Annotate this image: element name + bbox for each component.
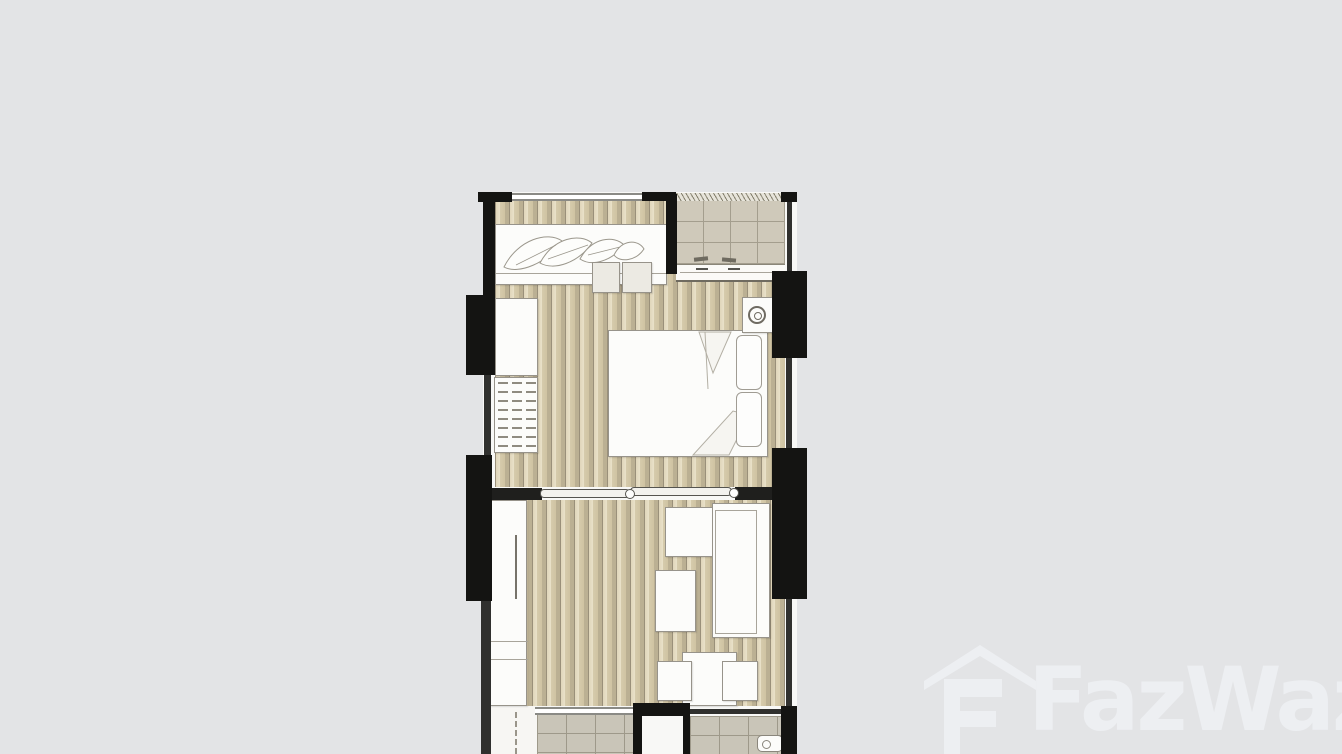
shelf-items — [526, 382, 536, 448]
column-left-upper — [466, 295, 495, 375]
column-right-upper — [772, 271, 807, 358]
wall-bath-divider-right — [683, 716, 690, 754]
pillow-1 — [736, 335, 762, 390]
wall-right-bottom-corner — [781, 706, 797, 754]
sliding-door-panel-1 — [540, 489, 630, 498]
wall-left-lower — [481, 600, 491, 754]
closet-cabinet — [495, 298, 538, 376]
balcony-sliding-door-threshold — [676, 264, 785, 282]
washing-machine-door-icon — [748, 306, 766, 324]
coffee-table — [655, 570, 696, 632]
wall-top-right-corner — [781, 192, 797, 202]
pillow-2 — [736, 392, 762, 447]
bench-stool-2 — [622, 262, 652, 293]
counter-handle — [515, 535, 517, 599]
wall-right-middle — [786, 357, 792, 449]
bench-stool-1 — [592, 262, 620, 293]
sliding-door-handle-1 — [625, 489, 635, 499]
watermark-brand: FazWaz — [1028, 648, 1342, 751]
sliding-door-panel-2 — [630, 487, 732, 496]
entry-door-swing — [515, 712, 517, 754]
wall-bath-divider-left — [633, 714, 642, 754]
dining-chair-right — [722, 661, 758, 701]
sliding-door-handle-2 — [729, 488, 739, 498]
balcony-railing — [676, 193, 781, 201]
balcony-tile-floor — [676, 200, 785, 264]
wall-right-lower — [786, 598, 792, 708]
wall-left-upper — [483, 192, 495, 300]
toilet-fixture — [757, 735, 783, 752]
bathroom-left-wall — [535, 707, 633, 715]
partition-wall-left-segment — [488, 488, 542, 500]
bathroom-right-wall — [690, 709, 782, 714]
fazwaz-house-logo-icon — [924, 643, 1036, 754]
tv-cabinet — [665, 507, 715, 557]
wall-right-balcony — [787, 200, 792, 274]
shelf-items — [512, 382, 522, 448]
sofa — [712, 503, 770, 638]
entry-floor — [488, 706, 537, 754]
wall-balcony-left — [666, 194, 677, 274]
kitchen-counter — [490, 500, 527, 706]
screenshot-canvas: FazWaz — [0, 0, 1342, 754]
double-bed — [608, 330, 768, 457]
shelf-unit — [494, 377, 538, 453]
bedroom-window-top — [512, 193, 642, 201]
bathroom-left-tile-floor — [537, 714, 633, 754]
wall-left-middle — [484, 375, 491, 457]
sofa-seat — [715, 510, 757, 634]
dining-chair-left — [657, 661, 692, 701]
washing-machine — [742, 297, 773, 333]
column-right-lower — [772, 448, 807, 599]
shelf-items — [498, 382, 508, 448]
column-left-lower — [466, 455, 492, 601]
